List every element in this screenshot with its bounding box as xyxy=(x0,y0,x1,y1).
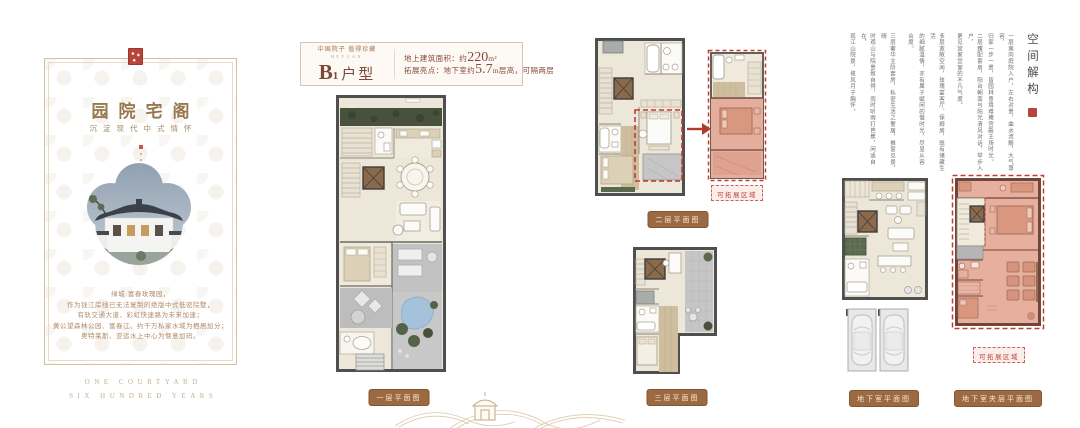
floor-plan-level3 xyxy=(633,247,717,374)
footer-english-line1: ONE COURTYARD xyxy=(20,378,262,386)
caption-floor2: 二层平面图 xyxy=(648,211,709,228)
decon-paragraph-3: 三层奢华主阶套房，私密生活之奢居，推窗见景，晴 时观山与院景致自得，雨时听雨打芭… xyxy=(847,33,896,173)
brand-paragraph: 绿城·富春玫瑰园， 作为钱江岸线已无法复制的绝版中式低密院墅， 有轨交通大道、彩… xyxy=(45,290,236,343)
brand-card: 园院宅阁 沉淀现代中式情怀 xyxy=(20,28,262,408)
section-title: 空间解构 xyxy=(1024,33,1040,173)
space-deconstruction-block: 空间解构 一层南向庭院入户，左右对景，曲水流觞，大气尊容， 归家一步一景，皆园林… xyxy=(838,33,1040,173)
header-divider xyxy=(394,49,395,79)
brand-subtitle: 沉淀现代中式情怀 xyxy=(45,123,236,134)
seal-icon xyxy=(1028,108,1037,117)
expandable-area-badge-top: 可拓展区域 xyxy=(711,185,763,201)
decon-paragraph-2: 多层宽敞空间，玫瑰宴客厅、保姆房，既有储藏生活 的细腻温情，亦有属于赋闲的慢时光… xyxy=(905,33,945,173)
floor-plan-level2-expansion xyxy=(707,49,767,182)
footer-english-line2: SIX HUNDRED YEARS xyxy=(20,392,262,400)
caption-floor3: 三层平面图 xyxy=(647,389,708,406)
unit-name-block: 中国院子 值得珍藏 HEYUAN B1户型 xyxy=(309,44,385,85)
tagline-cn: 中国院子 值得珍藏 xyxy=(309,44,385,53)
unit-type-header: 中国院子 值得珍藏 HEYUAN B1户型 地上建筑面积：约220m² 拓展亮点… xyxy=(300,42,523,86)
brand-title: 园院宅阁 xyxy=(45,97,236,122)
mini-seal-icon xyxy=(139,145,143,149)
unit-name: B1户型 xyxy=(309,60,385,85)
tagline-en: HEYUAN xyxy=(309,54,385,59)
mountain-ornament xyxy=(395,390,625,428)
seal-icon xyxy=(128,48,143,65)
brochure-page: 园院宅阁 沉淀现代中式情怀 xyxy=(0,0,1080,428)
decon-paragraph-1: 一层南向庭院入户，左右对景，曲水流觞，大气尊容， 归家一步一景，皆园林意境难掩宫… xyxy=(954,33,1014,173)
vertical-ornament xyxy=(45,145,236,173)
unit-specs: 地上建筑面积：约220m² 拓展亮点：地下室约5.7m层高，可隔两层 xyxy=(404,52,554,76)
spec-basement: 拓展亮点：地下室约5.7m层高，可隔两层 xyxy=(404,64,554,76)
floor-plan-basement xyxy=(842,178,928,300)
floor-plan-level1 xyxy=(336,95,446,372)
caption-mezzanine: 地下室夹层平面图 xyxy=(954,390,1042,407)
ornate-frame: 园院宅阁 沉淀现代中式情怀 xyxy=(44,58,237,365)
expandable-area-badge-bottom: 可拓展区域 xyxy=(973,347,1025,363)
floor-plan-mezzanine xyxy=(951,174,1045,330)
parking-spaces xyxy=(846,306,910,374)
floor-plan-level2 xyxy=(595,38,685,196)
caption-basement: 地下室平面图 xyxy=(849,390,919,407)
